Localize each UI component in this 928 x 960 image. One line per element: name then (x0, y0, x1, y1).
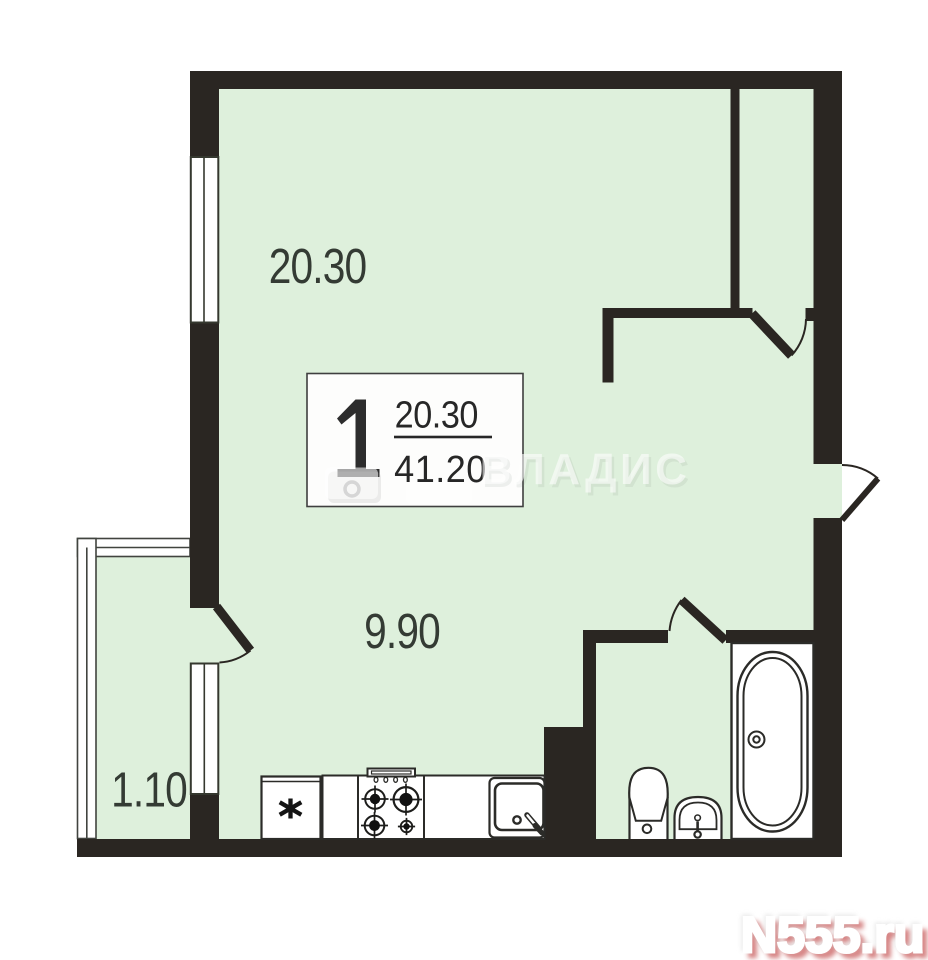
svg-text:N555.ru: N555.ru (741, 907, 924, 960)
svg-text:20.30: 20.30 (395, 393, 478, 436)
svg-text:20.30: 20.30 (269, 238, 367, 293)
svg-text:ВЛАДИС: ВЛАДИС (480, 445, 691, 494)
svg-text:1.10: 1.10 (111, 762, 187, 817)
svg-text:9.90: 9.90 (364, 603, 440, 658)
